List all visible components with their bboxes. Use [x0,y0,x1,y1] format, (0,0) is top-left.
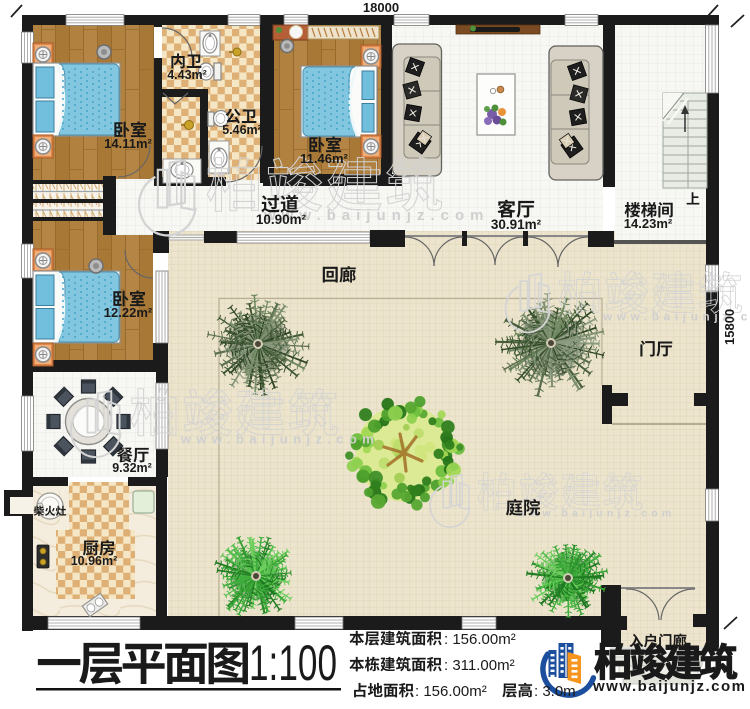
svg-text:: 156.00m²: : 156.00m² [415,683,487,700]
svg-text:14.11m²: 14.11m² [104,136,152,151]
svg-text:4.43m²: 4.43m² [167,68,207,82]
svg-text:5.46m²: 5.46m² [222,123,262,137]
svg-text:1:100: 1:100 [249,635,337,691]
svg-text:: 156.00m²: : 156.00m² [444,631,516,648]
svg-text:: 3.0m: : 3.0m [534,683,576,700]
svg-text:: 311.00m²: : 311.00m² [444,657,515,674]
svg-text:www.baijunjz.com: www.baijunjz.com [180,432,379,447]
svg-text:12.22m²: 12.22m² [104,305,153,320]
svg-text:9.32m²: 9.32m² [112,461,152,475]
svg-text:30.91m²: 30.91m² [491,217,542,232]
svg-text:11.46m²: 11.46m² [300,151,348,166]
svg-text:18000: 18000 [363,0,399,15]
svg-text:www.baijunjz.com: www.baijunjz.com [517,507,676,519]
svg-text:14.23m²: 14.23m² [624,216,673,231]
svg-text:10.90m²: 10.90m² [256,212,307,227]
svg-text:www.baijunjz.com: www.baijunjz.com [592,678,746,695]
svg-text:10.96m²: 10.96m² [71,554,118,568]
svg-text:15800: 15800 [722,309,737,345]
